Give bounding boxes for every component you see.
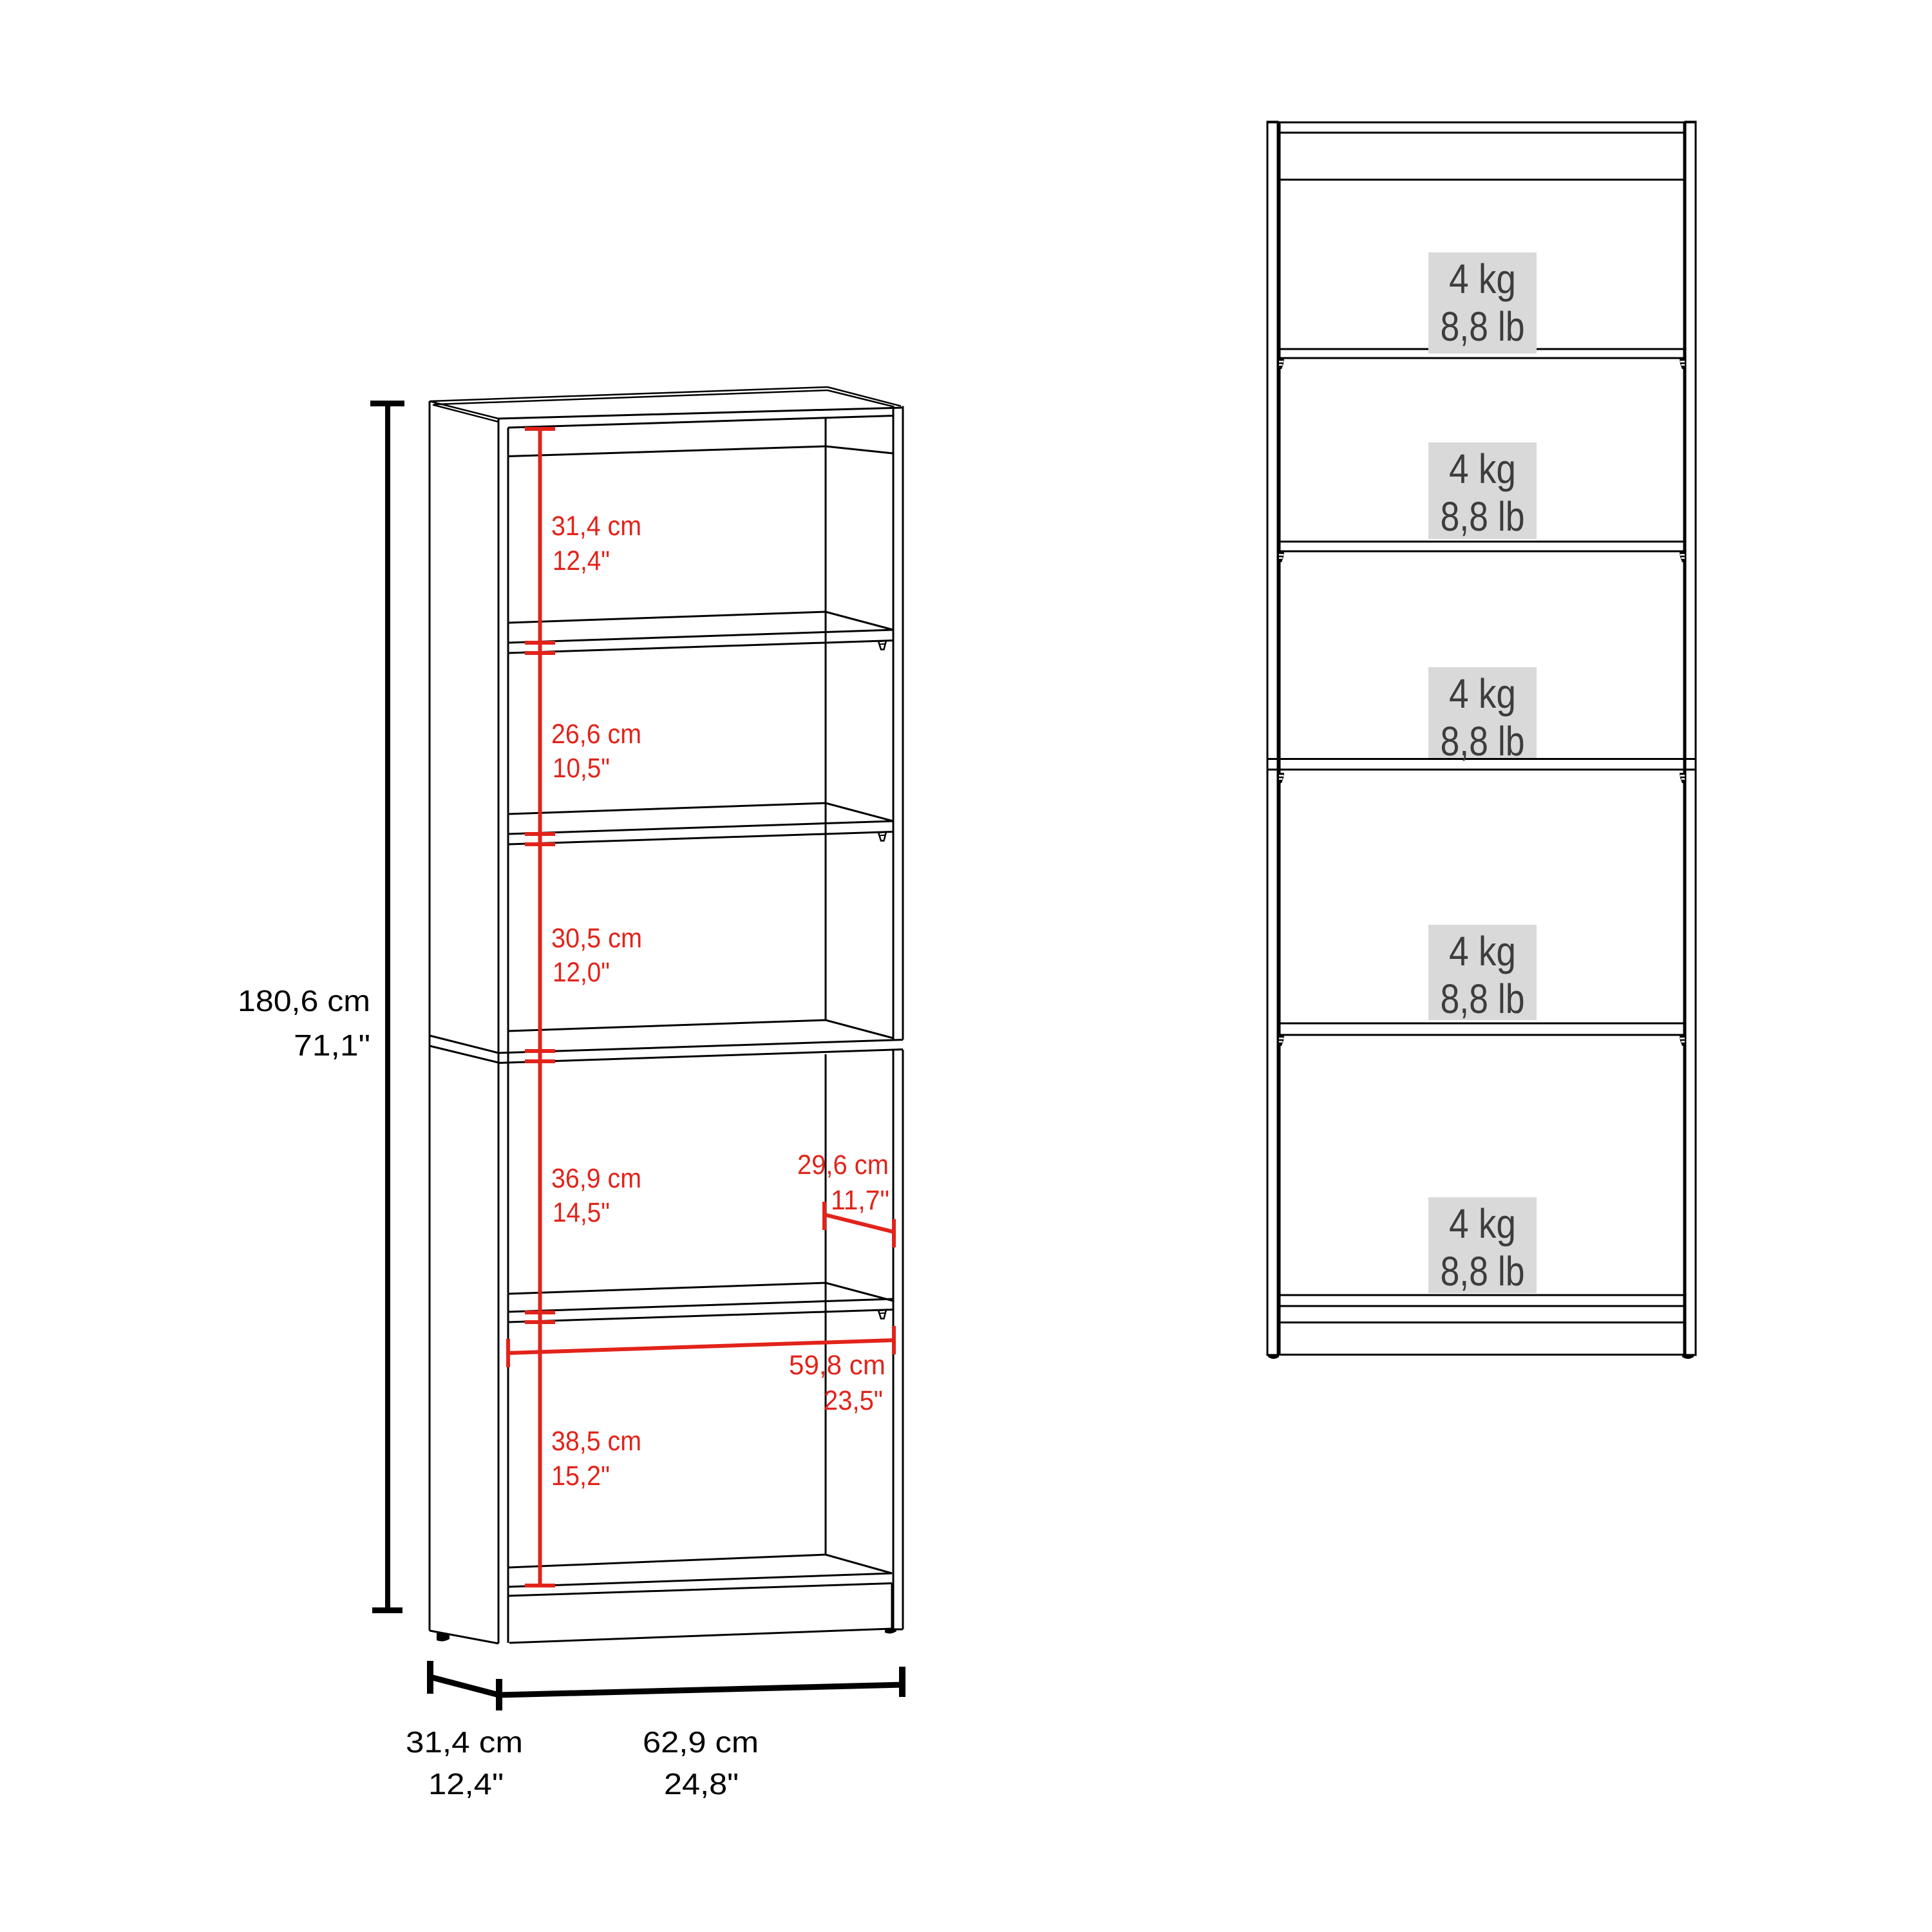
svg-text:71,1": 71,1"	[294, 1028, 370, 1062]
svg-text:4 kg: 4 kg	[1449, 928, 1516, 974]
svg-text:14,5": 14,5"	[553, 1197, 610, 1228]
svg-text:11,7": 11,7"	[831, 1185, 889, 1216]
svg-text:8,8 lb: 8,8 lb	[1441, 976, 1525, 1022]
svg-text:180,6 cm: 180,6 cm	[238, 984, 370, 1018]
svg-text:36,9 cm: 36,9 cm	[551, 1163, 641, 1194]
svg-text:8,8 lb: 8,8 lb	[1441, 303, 1525, 350]
svg-text:15,2": 15,2"	[551, 1461, 610, 1492]
svg-text:24,8": 24,8"	[664, 1767, 739, 1801]
svg-text:30,5 cm: 30,5 cm	[551, 923, 642, 954]
svg-text:8,8 lb: 8,8 lb	[1441, 493, 1525, 540]
svg-text:8,8 lb: 8,8 lb	[1441, 718, 1525, 764]
svg-text:38,5 cm: 38,5 cm	[551, 1426, 641, 1457]
svg-text:59,8 cm: 59,8 cm	[789, 1350, 885, 1381]
svg-text:4 kg: 4 kg	[1449, 670, 1516, 717]
svg-text:31,4 cm: 31,4 cm	[406, 1725, 523, 1759]
svg-text:12,0": 12,0"	[553, 957, 610, 988]
svg-text:31,4 cm: 31,4 cm	[551, 511, 641, 542]
svg-text:12,4": 12,4"	[428, 1767, 504, 1801]
svg-text:29,6 cm: 29,6 cm	[797, 1150, 889, 1180]
svg-text:4 kg: 4 kg	[1449, 256, 1516, 302]
svg-text:4 kg: 4 kg	[1449, 446, 1516, 492]
svg-text:26,6 cm: 26,6 cm	[551, 719, 641, 750]
svg-text:10,5": 10,5"	[553, 753, 610, 784]
svg-text:12,4": 12,4"	[553, 545, 610, 576]
svg-text:4 kg: 4 kg	[1449, 1200, 1516, 1247]
svg-text:62,9 cm: 62,9 cm	[643, 1725, 759, 1759]
svg-text:8,8 lb: 8,8 lb	[1441, 1248, 1525, 1294]
svg-text:23,5": 23,5"	[824, 1385, 883, 1416]
